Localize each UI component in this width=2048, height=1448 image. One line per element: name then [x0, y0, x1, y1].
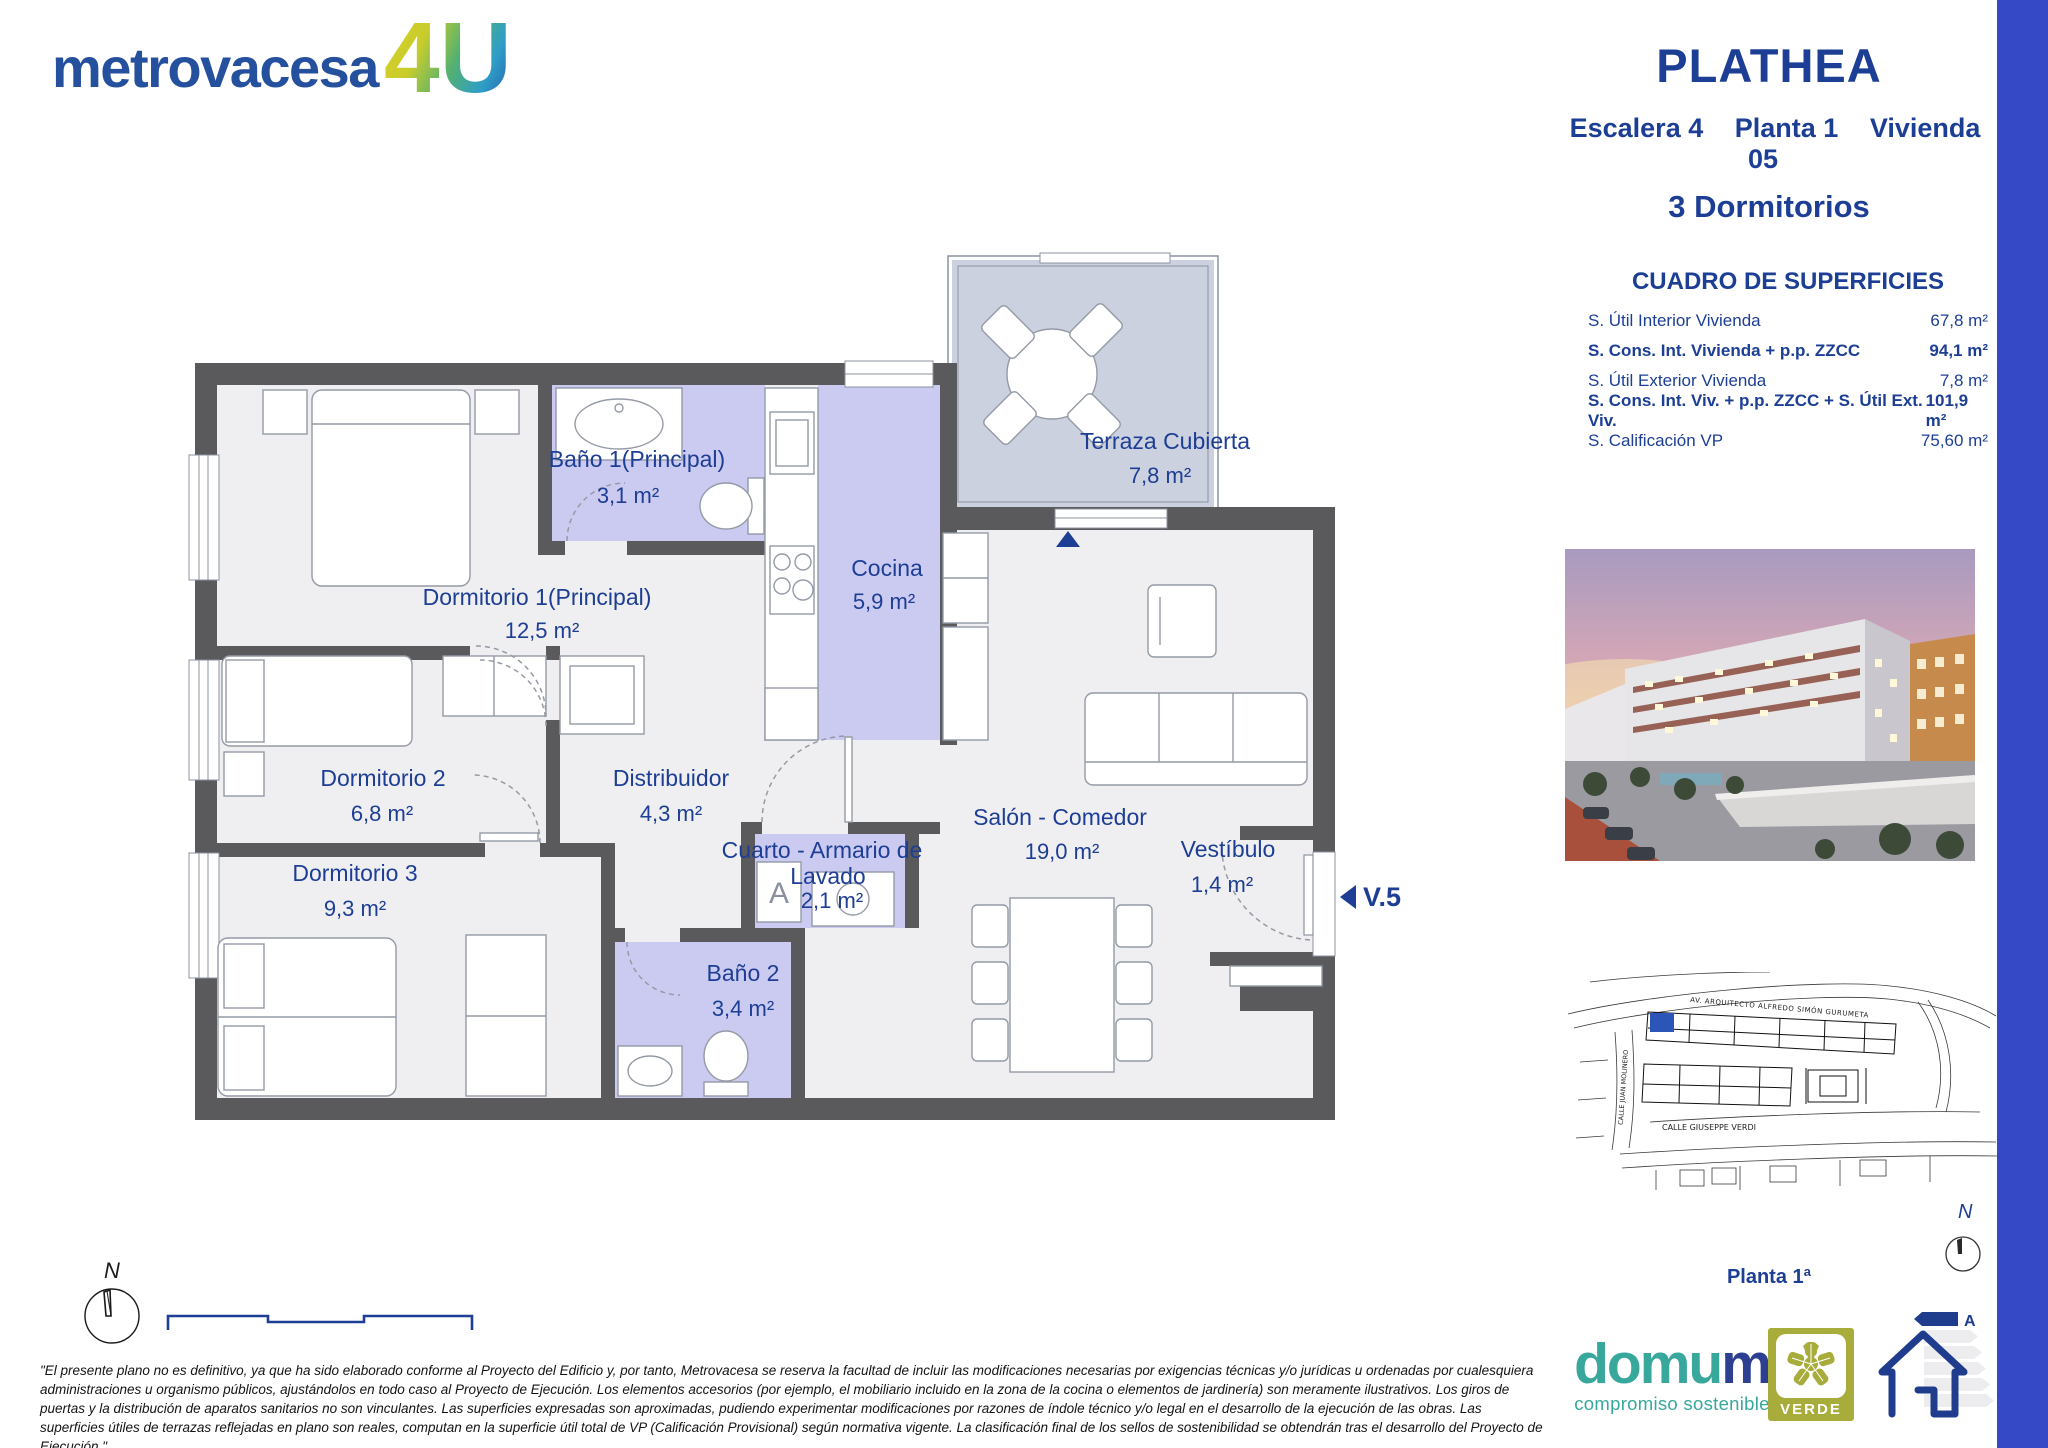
plan-sheet: metrovacesa 4U PLATHEA Escalera 4 Planta… [0, 0, 2048, 1448]
surfaces-title: CUADRO DE SUPERFICIES [1588, 268, 1988, 296]
unit-header: PLATHEA Escalera 4 Planta 1 Vivienda 05 … [1540, 42, 1998, 225]
v5-marker: V.5 [1363, 882, 1401, 912]
site-location-map: AV. ARQUITECTO ALFREDO SIMÓN GURUMETA CA… [1560, 972, 2000, 1190]
metrovacesa-wordmark: metrovacesa [52, 40, 378, 102]
surfaces-table: CUADRO DE SUPERFICIES S. Útil Interior V… [1588, 268, 1988, 456]
domum-tagline: compromiso sostenible [1572, 1395, 1772, 1414]
energy-rating-icon: A [1862, 1310, 1994, 1424]
north-compass: N [76, 1258, 150, 1354]
room-area: 6,8 m² [351, 801, 413, 826]
domum-wordmark: domu [1574, 1332, 1721, 1396]
room-label: Baño 2 [707, 960, 780, 986]
planta-caption: Planta 1ª [1540, 1266, 1998, 1289]
legal-disclaimer: "El presente plano no es definitivo, ya … [40, 1362, 1545, 1448]
room-label: Dormitorio 3 [292, 860, 417, 886]
v5-arrow [1340, 885, 1356, 909]
room-label: Cuarto - Armario de [722, 837, 923, 863]
avenue-label: AV. ARQUITECTO ALFREDO SIMÓN GURUMETA [1690, 995, 1869, 1020]
highlighted-unit [1650, 1013, 1674, 1032]
room-label: Vestíbulo [1181, 836, 1276, 862]
room-label: Lavado [790, 863, 865, 889]
escalera-label: Escalera 4 [1570, 113, 1704, 143]
floorplan-drawing: V.5 A Dormitorio 1(Principal) 12,5 m² Ba… [140, 200, 1420, 1175]
unit-identifier: Escalera 4 Planta 1 Vivienda 05 [1540, 113, 1998, 175]
room-label: Dormitorio 2 [320, 765, 445, 791]
room-label: Baño 1(Principal) [549, 446, 725, 472]
room-area: 7,8 m² [1129, 463, 1191, 488]
room-label: Salón - Comedor [973, 804, 1147, 830]
north-label: N [1958, 1201, 1973, 1223]
bedrooms-label: 3 Dormitorios [1540, 189, 1998, 225]
room-area: 4,3 m² [640, 801, 702, 826]
project-title: PLATHEA [1540, 42, 1998, 89]
room-area: 2,1 m² [801, 888, 863, 913]
room-area: 12,5 m² [505, 618, 580, 643]
room-label: Dormitorio 1(Principal) [423, 584, 652, 610]
surface-row: S. Cons. Int. Vivienda + p.p. ZZCC94,1 m… [1588, 336, 1988, 366]
armario-letter: A [769, 877, 789, 910]
room-label: Cocina [851, 555, 923, 581]
room-area: 3,1 m² [597, 483, 659, 508]
domum-logo: domum compromiso sostenible [1572, 1336, 1772, 1414]
room-label: Distribuidor [613, 765, 730, 791]
domum-wordmark-m: m [1721, 1332, 1770, 1396]
energy-letter: A [1964, 1313, 1976, 1330]
room-area: 19,0 m² [1025, 839, 1100, 864]
metrovacesa-logo: metrovacesa 4U [52, 14, 512, 102]
4u-gradient-mark: 4U [384, 14, 512, 102]
verde-label: VERDE [1768, 1401, 1854, 1418]
surface-row: S. Cons. Int. Viv. + p.p. ZZCC + S. Útil… [1588, 396, 1988, 426]
room-area: 5,9 m² [853, 589, 915, 614]
room-area: 3,4 m² [712, 996, 774, 1021]
north-compass: N [1936, 1200, 1990, 1284]
surface-row: S. Útil Interior Vivienda67,8 m² [1588, 306, 1988, 336]
room-label: Terraza Cubierta [1080, 428, 1250, 454]
street-bottom-label: CALLE GIUSEPPE VERDI [1662, 1123, 1756, 1132]
street-left-label: CALLE JUAN MOLINERO [1617, 1049, 1630, 1125]
verde-certification-badge: VERDE [1768, 1328, 1854, 1421]
room-area: 1,4 m² [1191, 872, 1253, 897]
blue-side-bar [1997, 0, 2048, 1448]
building-photo [1565, 549, 1975, 861]
scale-bar [160, 1308, 480, 1338]
verde-leaf-icon [1776, 1334, 1846, 1398]
north-label: N [104, 1258, 120, 1283]
room-area: 9,3 m² [324, 896, 386, 921]
planta-label: Planta 1 [1735, 113, 1839, 143]
